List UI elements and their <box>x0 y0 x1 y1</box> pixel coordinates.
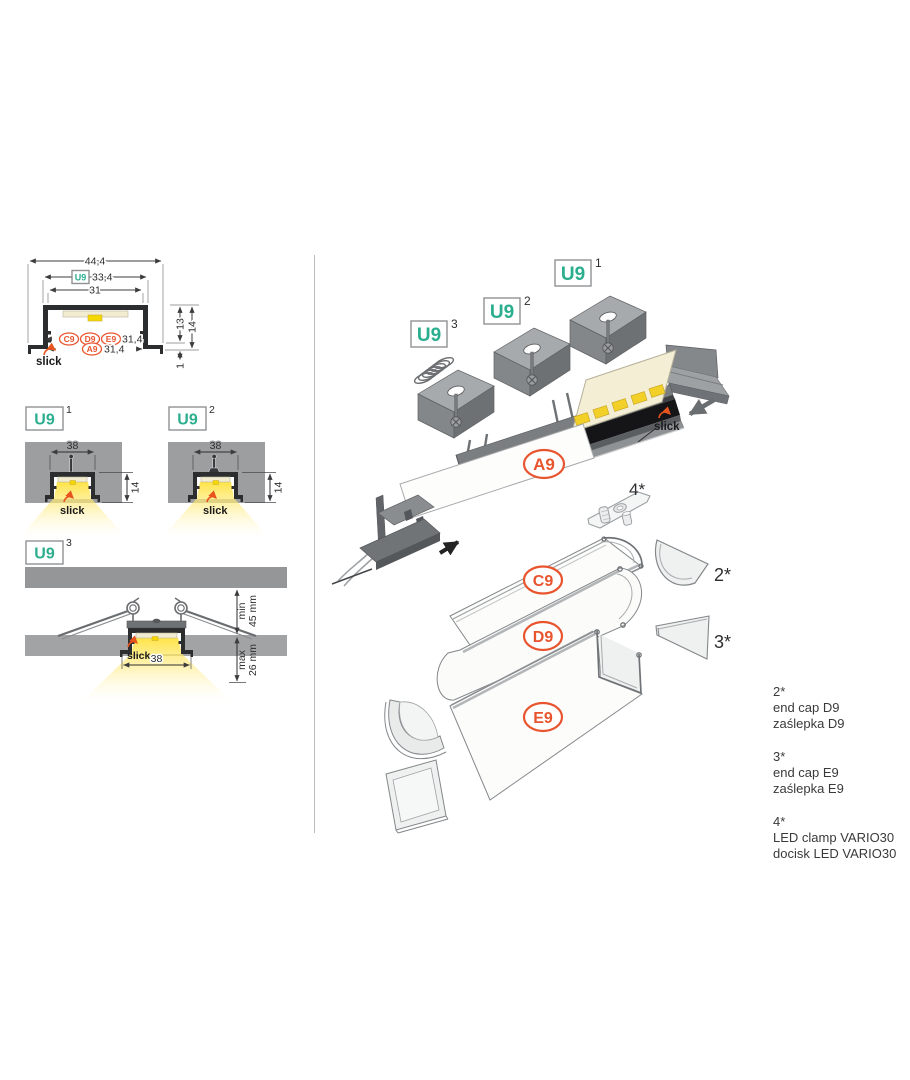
legend-name-pl: zaślepka D9 <box>773 716 908 732</box>
legend-name-pl: docisk LED VARIO30 <box>773 846 908 862</box>
legend-name-pl: zaślepka E9 <box>773 781 908 797</box>
badge-u9-exp3-sup: 3 <box>451 317 458 331</box>
insert-direction-arrow <box>690 400 714 414</box>
legend-name-en: LED clamp VARIO30 <box>773 830 908 846</box>
figure-mounting-variant-2: U9 2 38 14 slick <box>163 398 298 540</box>
callout-2: 2* <box>714 565 731 585</box>
end-cap-with-cable <box>332 495 440 586</box>
dim-covers-width: 31,4 <box>122 334 143 346</box>
end-cap-e9-left <box>386 760 448 833</box>
dim-v1-width: 38 <box>67 440 79 452</box>
badge-u9-exp1: U9 <box>561 264 585 285</box>
badge-e9-small: E9 <box>106 334 117 344</box>
dim-inner-width: 31 <box>89 285 101 297</box>
end-cap-d9-left <box>385 700 446 759</box>
slick-label-v3: slick <box>127 650 151 662</box>
badge-u9-exp3: U9 <box>417 325 441 346</box>
dim-diffuser-width: 31,4 <box>104 344 125 356</box>
slick-label-v1: slick <box>60 505 85 517</box>
mount-bracket-1 <box>570 296 646 364</box>
slick-arrow-icon <box>44 349 55 355</box>
dim-v2-width: 38 <box>210 440 222 452</box>
badge-d9: D9 <box>533 629 554 646</box>
badge-u9-v1: U9 <box>34 412 55 429</box>
badge-a9: A9 <box>533 455 555 474</box>
legend-item: 2* end cap D9 zaślepka D9 <box>773 684 908 732</box>
badge-u9-v2: U9 <box>177 412 198 429</box>
dim-v2-height: 14 <box>273 482 285 494</box>
legend-name-en: end cap E9 <box>773 765 908 781</box>
end-cap-d9-part <box>655 540 708 585</box>
figure-mounting-variant-1: U9 1 38 14 slick <box>20 398 155 540</box>
dim-max-value: 26 mm <box>247 644 259 676</box>
slick-label-v2: slick <box>203 505 228 517</box>
slick-label: slick <box>36 356 62 368</box>
legend-item: 3* end cap E9 zaślepka E9 <box>773 749 908 797</box>
section-divider <box>314 255 315 833</box>
end-cap-e9-part <box>656 616 709 659</box>
dim-v3-width: 38 <box>151 653 163 665</box>
badge-u9-exp2-sup: 2 <box>524 294 531 308</box>
slick-label-exploded: slick <box>654 421 680 433</box>
dim-inner-height: 13 <box>175 318 187 330</box>
legend-name-en: end cap D9 <box>773 700 908 716</box>
callout-3: 3* <box>714 632 731 652</box>
insert-direction-arrow-2 <box>440 542 458 553</box>
mount-bracket-2 <box>494 328 570 396</box>
dim-flange-height: 1 <box>175 363 187 369</box>
legend-item: 4* LED clamp VARIO30 docisk LED VARIO30 <box>773 814 908 862</box>
legend-ref: 2* <box>773 684 908 700</box>
u9-badge-small-label: U9 <box>75 273 87 283</box>
badge-u9-v2-sup: 2 <box>209 404 215 416</box>
structural-ceiling <box>25 567 287 588</box>
legend: 2* end cap D9 zaślepka D9 3* end cap E9 … <box>773 684 908 879</box>
dim-overall-width: 44,4 <box>85 256 106 268</box>
led-chip <box>88 315 102 321</box>
badge-u9-v3: U9 <box>34 546 55 563</box>
dim-min-value: 45 mm <box>247 595 259 627</box>
badge-u9-v1-sup: 1 <box>66 404 72 416</box>
badge-u9-exp2: U9 <box>490 302 514 323</box>
dim-v1-height: 14 <box>130 482 142 494</box>
badge-a9-small: A9 <box>87 344 98 354</box>
dim-outer-height: 14 <box>187 321 199 333</box>
badge-c9: C9 <box>533 573 554 590</box>
badge-u9-exp1-sup: 1 <box>595 256 602 270</box>
legend-ref: 4* <box>773 814 908 830</box>
datasheet-page: 44,4 U9 33,4 31 13 14 1 C9 D9 E9 31,4 A9… <box>0 0 910 1080</box>
callout-4: 4* <box>629 480 645 499</box>
figure-cross-section: 44,4 U9 33,4 31 13 14 1 C9 D9 E9 31,4 A9… <box>22 251 294 377</box>
badge-u9-v3-sup: 3 <box>66 537 72 549</box>
figure-mounting-variant-3: U9 3 slick 38 <box>20 533 305 728</box>
figure-exploded-assembly: A9 slick 4* <box>320 250 780 840</box>
badge-e9: E9 <box>533 710 553 727</box>
dim-recess-width: 33,4 <box>92 272 113 284</box>
badge-c9-small: C9 <box>64 334 75 344</box>
legend-ref: 3* <box>773 749 908 765</box>
